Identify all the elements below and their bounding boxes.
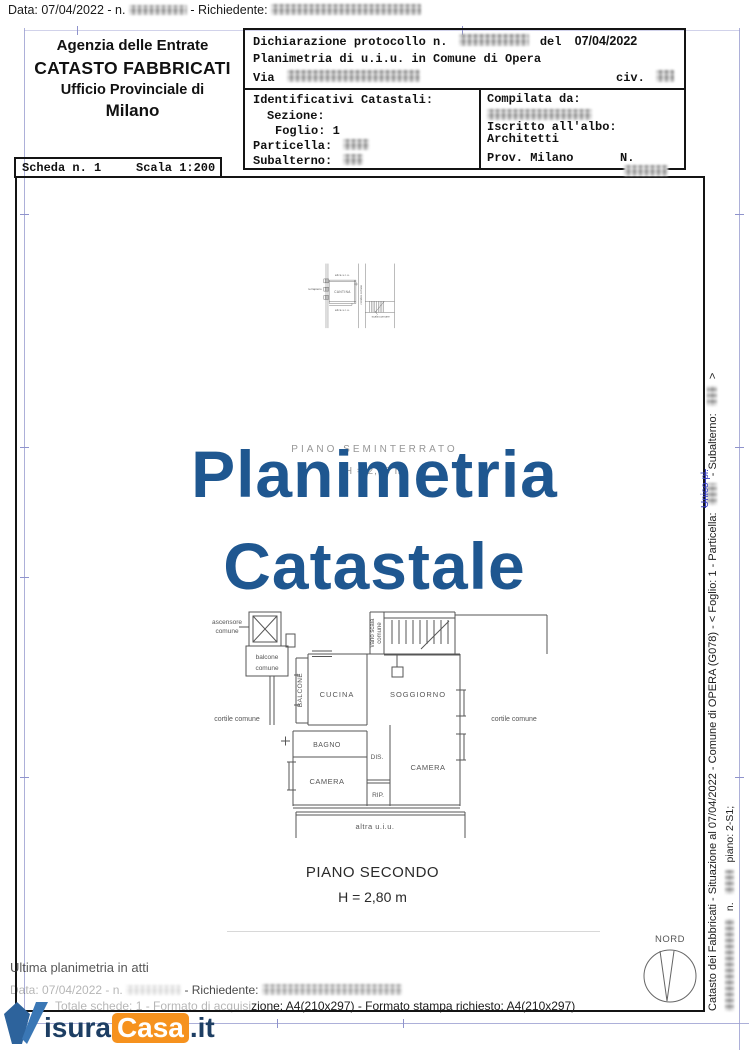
civ-line: civ. [616, 70, 674, 85]
label-corridoio-comune: corridoio comune [359, 284, 363, 304]
compass-needle [660, 951, 674, 1001]
redacted-side-address [725, 919, 734, 1011]
side-text-n-label: n. [724, 902, 736, 911]
label-cucina: CUCINA [320, 690, 355, 699]
label-dis: DIS. [371, 754, 384, 761]
compilata-title: Compilata da: [487, 92, 581, 106]
visuracasa-logo: isuraCasa.it [2, 1000, 215, 1045]
label-vano-scala-1: vano scala [370, 618, 376, 647]
protocol-date: 07/04/2022 [575, 34, 638, 48]
watermark-line1: Planimetria [0, 428, 749, 520]
top-data-text: Data: 07/04/2022 - n. [8, 3, 125, 17]
subalterno-label: Subalterno: [253, 154, 332, 168]
side-text-secondary: n. piano: 2-S1; [724, 709, 737, 1011]
box-divider-horizontal [245, 88, 684, 90]
side-text-main: Catasto dei Fabbricati - Situazione al 0… [707, 311, 722, 1011]
redacted-compiler-name [487, 109, 592, 120]
albo-number-line: N. [620, 151, 684, 179]
registration-tick [277, 1019, 278, 1028]
label-ascensore-1: ascensore [212, 619, 242, 626]
lower-plan-walls [239, 612, 547, 838]
side-text-piano: piano: 2-S1; [724, 806, 736, 863]
label-cantina: CANTINA [334, 290, 351, 294]
agency-header: Agenzia delle Entrate CATASTO FABBRICATI… [30, 36, 235, 122]
visuracasa-logo-text: isuraCasa.it [44, 1013, 215, 1043]
via-line: Via [253, 70, 420, 85]
scheda-box: Scheda n. 1 Scala 1:200 [14, 157, 222, 178]
registration-tick [77, 26, 78, 35]
label-ascensore-2: comune [215, 628, 239, 635]
planimetria-line: Planimetria di u.i.u. in Comune di Opera [253, 52, 541, 66]
albo-label: Architetti [487, 132, 559, 146]
redacted-footer-number [126, 985, 181, 995]
visuracasa-logo-mark-icon [2, 1000, 50, 1045]
label-soggiorno: SOGGIORNO [390, 690, 446, 699]
protocol-label: Dichiarazione protocollo n. [253, 35, 447, 49]
redacted-street [287, 70, 420, 82]
via-label: Via [253, 71, 275, 85]
top-richiedente-label: - Richiedente: [190, 3, 267, 17]
label-balcone: BALCONE [297, 673, 304, 708]
scheda-number: Scheda n. 1 [22, 161, 101, 175]
lower-floor-plan: ascensore comune balcone comune BALCONE … [190, 608, 570, 852]
redacted-side-subalterno [707, 386, 717, 406]
watermark: Planimetria Catastale [0, 428, 749, 612]
label-terrapieno: terrapieno [308, 287, 322, 291]
side-text-main-3: > [707, 373, 719, 379]
registration-tick [403, 1019, 404, 1028]
footer-format-text: zione: A4(210x297) - Formato stampa rich… [251, 999, 575, 1013]
foglio-label: Foglio: 1 [275, 124, 340, 138]
upper-floor-plan: altra u.i.u. terrapieno CANTINA corridoi… [225, 262, 475, 432]
prov-label: Prov. Milano [487, 151, 573, 165]
particella-label: Particella: [253, 139, 332, 153]
particella-line: Particella: [253, 139, 369, 153]
redacted-civ [656, 70, 674, 82]
identificativi-title: Identificativi Catastali: [253, 93, 433, 107]
footer-richiedente-label: - Richiedente: [184, 983, 258, 997]
label-scala-comune: scala comune [372, 314, 390, 318]
redacted-albo-number [624, 165, 668, 176]
redacted-particella [343, 139, 369, 150]
cadastral-document-page: Data: 07/04/2022 - n. - Richiedente: Age… [0, 0, 749, 1050]
logo-text-it: .it [190, 1012, 215, 1043]
altezza-caption: H = 2,80 m [150, 889, 595, 905]
agency-line2: CATASTO FABBRICATI [30, 56, 235, 80]
redacted-side-number [725, 870, 734, 894]
redacted-footer-requester [262, 984, 402, 995]
sezione-label: Sezione: [267, 109, 325, 123]
logo-text-casa: Casa [112, 1013, 189, 1043]
label-camera-right: CAMERA [410, 763, 445, 772]
subalterno-line: Subalterno: [253, 154, 363, 168]
scala-label: Scala 1:200 [136, 161, 215, 175]
registration-tick [735, 214, 744, 215]
label-bagno: BAGNO [313, 742, 341, 749]
footer-data-line: Data: 07/04/2022 - n. - Richiedente: [10, 983, 402, 997]
agency-line4: Milano [30, 100, 235, 122]
label-camera-left: CAMERA [309, 777, 344, 786]
label-cortile-comune-left: cortile comune [214, 716, 260, 723]
agency-line1: Agenzia delle Entrate [30, 36, 235, 56]
agency-line3: Ufficio Provinciale di [30, 80, 235, 100]
redacted-protocol-no [459, 34, 529, 46]
civ-label: civ. [616, 71, 645, 85]
piano-caption: PIANO SECONDO [150, 864, 595, 881]
label-altra-uiu: altra u.i.u. [356, 822, 395, 831]
protocol-del: del [540, 35, 562, 49]
label-vano-scala-2: comune [377, 622, 383, 644]
redacted-subalterno [343, 154, 363, 165]
protocol-box: Dichiarazione protocollo n. del 07/04/20… [243, 28, 686, 170]
ultima-planimetria: Ultima planimetria in atti [10, 960, 149, 975]
redacted-protocol-number [129, 5, 187, 15]
label-altra-uiu-top: altra u.i.u. [335, 273, 350, 277]
label-rip: RIP. [372, 792, 384, 799]
footer-data-part1: Data: 07/04/2022 - n. [10, 983, 123, 997]
compass-label: NORD [655, 934, 685, 945]
protocol-line: Dichiarazione protocollo n. del 07/04/20… [253, 34, 637, 49]
label-cortile-comune-right: cortile comune [491, 716, 537, 723]
compass: NORD [636, 930, 706, 1010]
top-data-line: Data: 07/04/2022 - n. - Richiedente: [8, 3, 421, 17]
label-balcone-comune-2: comune [255, 665, 279, 672]
watermark-line2: Catastale [0, 520, 749, 612]
label-altra-uiu-bottom: altra u.i.u. [335, 308, 350, 312]
logo-text-isura: isura [44, 1012, 111, 1043]
box-divider-vertical [479, 88, 481, 168]
albo-number-label: N. [620, 151, 634, 165]
redacted-requester [271, 4, 421, 15]
faint-divider [227, 931, 600, 932]
label-balcone-comune-1: balcone [256, 654, 279, 661]
